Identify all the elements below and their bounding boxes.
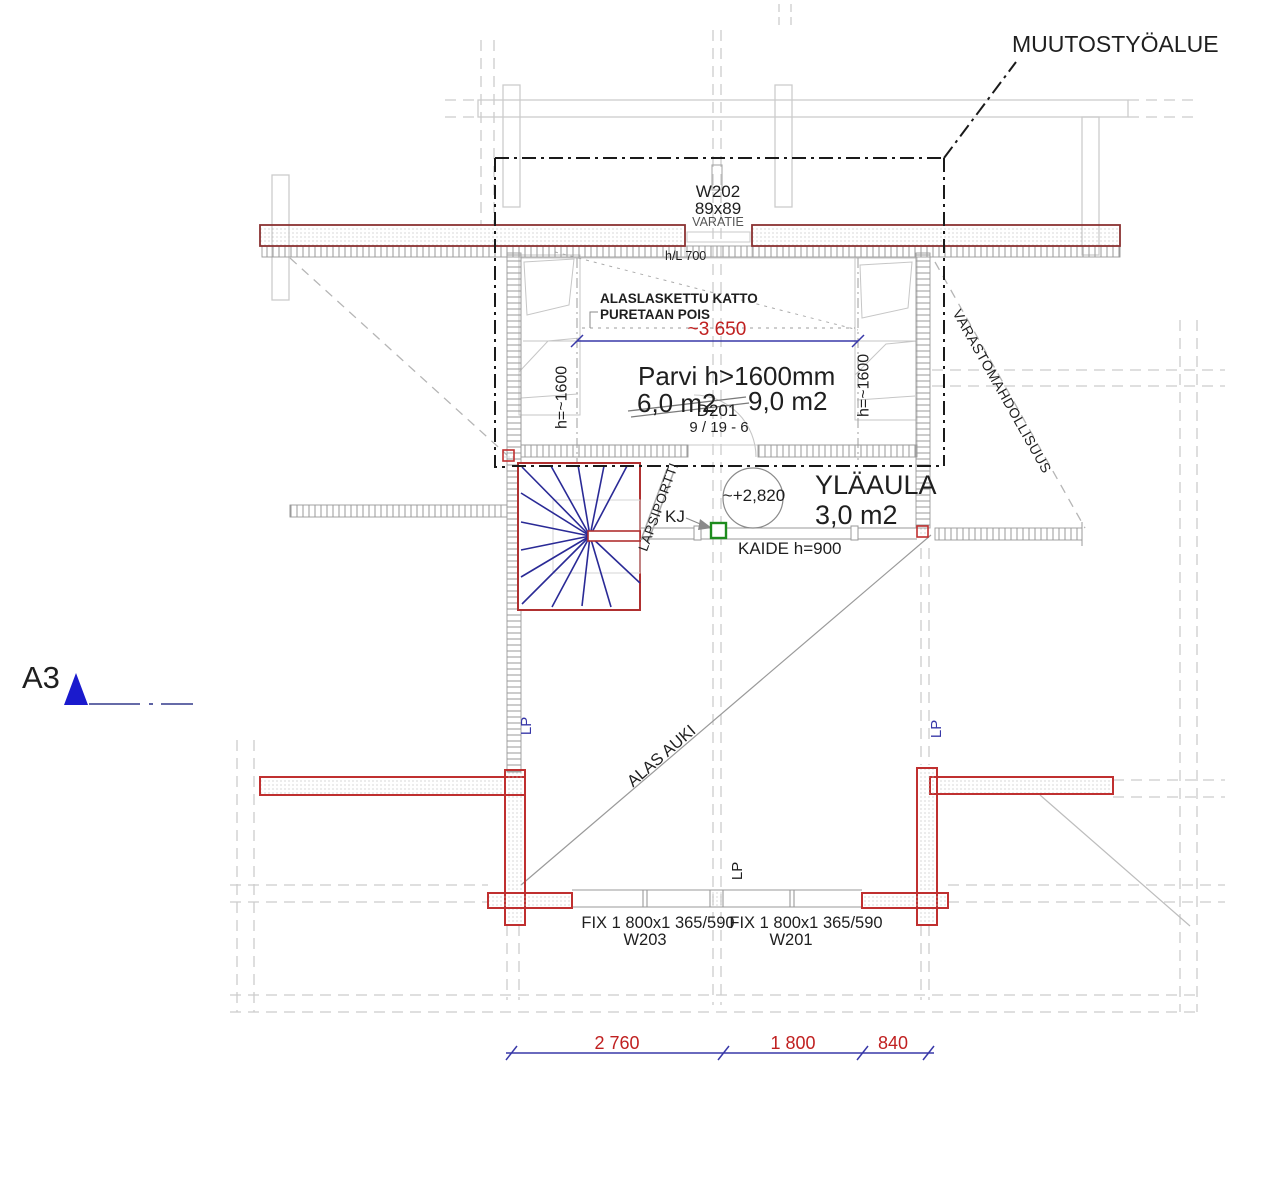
label-height-left: h=~1600: [555, 357, 572, 437]
label-window-left-code: W203: [605, 932, 685, 949]
label-railing: KAIDE h=900: [738, 540, 842, 558]
label-ceiling-note-1: ALASLASKETTU KATTO: [600, 292, 758, 306]
label-dim-840: 840: [853, 1034, 933, 1053]
label-lp-right: LP: [929, 714, 945, 744]
label-door-ref: 9 / 19 - 6: [679, 420, 759, 436]
revision-triangle-icon: [64, 673, 88, 705]
label-window-left-spec: FIX 1 800x1 365/590: [578, 915, 738, 932]
label-door-code: D201: [677, 402, 757, 420]
floor-plan-sheet: MUUTOSTYÖALUE W202 89x89 VARATIE h/L 700…: [0, 0, 1286, 1200]
label-window-right-spec: FIX 1 800x1 365/590: [726, 915, 886, 932]
label-hall-name: YLÄAULA: [815, 471, 937, 499]
label-lp-bottom: LP: [730, 856, 746, 886]
label-renovation-area: MUUTOSTYÖALUE: [1012, 32, 1219, 56]
label-dim-2760: 2 760: [577, 1034, 657, 1053]
label-lp-left: LP: [519, 711, 535, 741]
label-hall-area: 3,0 m2: [815, 501, 898, 529]
diagonal-reference-lines: [290, 258, 1190, 926]
label-window-top-note: VARATIE: [668, 216, 768, 229]
bottom-window-band: [572, 890, 862, 907]
revision-mark-a3: [64, 673, 193, 705]
label-kj: KJ: [665, 508, 685, 526]
label-window-right-code: W201: [751, 932, 831, 949]
staircase: [518, 463, 640, 610]
label-loft-area-new: 9,0 m2: [748, 388, 828, 415]
gate-post-green-square: [711, 523, 726, 538]
label-sheet-size: A3: [22, 662, 60, 695]
label-hl-700: h/L 700: [665, 250, 706, 263]
floor-plan-drawing: [0, 0, 1286, 1200]
label-dim-3650: ~3 650: [667, 320, 767, 340]
label-level-mark: ~+2,820: [714, 487, 794, 505]
label-dim-1800: 1 800: [753, 1034, 833, 1053]
label-height-right: h=~1600: [857, 345, 874, 425]
